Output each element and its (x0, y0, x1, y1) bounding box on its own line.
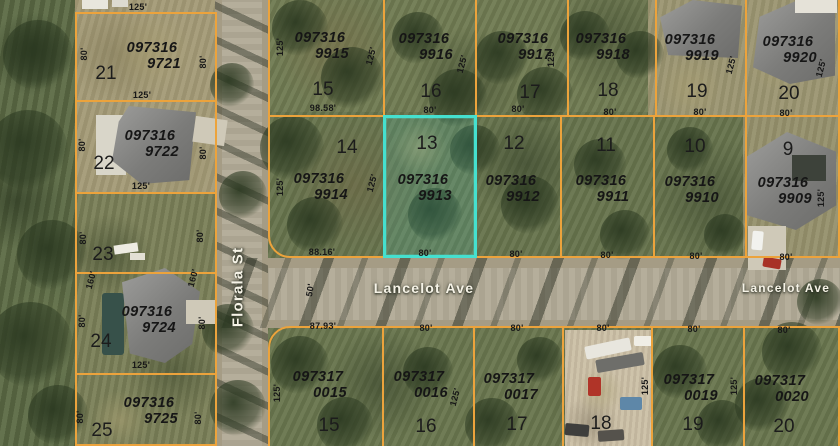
dimension-label: 80' (689, 251, 702, 261)
dimension-label: 125' (448, 387, 462, 407)
parcel-id-label-0017: 0973170017 (484, 372, 535, 404)
dimension-label: 80' (198, 146, 208, 159)
parcel-id-label-9915: 0973169915 (295, 31, 346, 63)
dimension-label: 80' (777, 325, 790, 335)
dimension-label: 80' (193, 411, 203, 424)
dimension-label: 80' (77, 314, 87, 327)
lot-number-24: 24 (90, 331, 111, 353)
parcel-id-label-9914: 0973169914 (294, 172, 345, 204)
dimension-label: 80' (603, 107, 616, 117)
lot-number-9909: 9 (783, 139, 794, 161)
dimension-label: 80' (596, 323, 609, 333)
lot-number-0020: 20 (773, 416, 794, 438)
dimension-label: 80' (78, 231, 88, 244)
lot-number-23: 23 (92, 244, 113, 266)
street-label-florala-st: Florala St (230, 247, 247, 327)
lot-number-21: 21 (95, 63, 116, 85)
parcel-id-label-25: 0973169725 (124, 396, 175, 428)
parcel-id-label-9911: 0973169911 (576, 174, 627, 206)
dimension-label: 160' (84, 270, 98, 290)
parcel-id-label-24: 0973169724 (122, 305, 173, 337)
lot-number-9913: 13 (416, 133, 437, 155)
dimension-label: 80' (509, 249, 522, 259)
dimension-label: 160' (186, 268, 200, 288)
dimension-label: 50' (304, 283, 316, 298)
parcel-id-label-0020: 0973170020 (755, 374, 806, 406)
label-layer: 0973169721210973169722222309731697242409… (0, 0, 840, 446)
parcel-id-label-9910: 0973169910 (665, 175, 716, 207)
dimension-label: 80' (418, 248, 431, 258)
street-label-lancelot-ave: Lancelot Ave (374, 280, 475, 296)
lot-number-0019: 19 (682, 414, 703, 436)
lot-number-9918: 18 (597, 80, 618, 102)
lot-number-25: 25 (91, 420, 112, 442)
dimension-label: 80' (779, 108, 792, 118)
dimension-label: 125' (640, 377, 650, 395)
dimension-label: 80' (511, 104, 524, 114)
parcel-id-label-0019: 0973170019 (664, 373, 715, 405)
dimension-label: 125' (816, 189, 826, 207)
dimension-label: 80' (600, 250, 613, 260)
dimension-label: 125' (129, 2, 147, 12)
parcel-id-label-9918: 0973169918 (576, 32, 627, 64)
dimension-label: 125' (729, 377, 739, 395)
dimension-label: 80' (419, 323, 432, 333)
lot-number-9912: 12 (503, 133, 524, 155)
dimension-label: 80' (195, 229, 205, 242)
lot-number-9914: 14 (336, 137, 357, 159)
lot-number-0016: 16 (415, 416, 436, 438)
parcel-id-label-9917: 0973169917 (498, 32, 549, 64)
dimension-label: 125' (132, 360, 150, 370)
parcel-id-label-9920: 0973169920 (763, 35, 814, 67)
dimension-label: 87.93' (310, 321, 336, 331)
dimension-label: 125' (724, 55, 738, 75)
dimension-label: 125' (272, 384, 282, 402)
parcel-id-label-0015: 0973170015 (293, 370, 344, 402)
lot-number-9915: 15 (312, 79, 333, 101)
dimension-label: 98.58' (310, 103, 336, 113)
lot-number-9910: 10 (684, 136, 705, 158)
lot-number-9917: 17 (519, 82, 540, 104)
dimension-label: 80' (510, 323, 523, 333)
dimension-label: 125' (275, 38, 285, 56)
lot-number-9920: 20 (778, 83, 799, 105)
lot-number-0017: 17 (506, 414, 527, 436)
dimension-label: 80' (198, 55, 208, 68)
dimension-label: 88.16' (309, 247, 335, 257)
dimension-label: 80' (197, 316, 207, 329)
parcel-id-label-9909: 0973169909 (758, 176, 809, 208)
dimension-label: 80' (693, 107, 706, 117)
lot-number-18-south: 18 (590, 413, 611, 435)
lot-number-22: 22 (93, 153, 114, 175)
dimension-label: 125' (364, 46, 378, 66)
aerial-parcel-map: 0973169721210973169722222309731697242409… (0, 0, 840, 446)
parcel-id-label-22: 0973169722 (125, 129, 176, 161)
dimension-label: 125' (546, 49, 556, 67)
street-label-lancelot-ave: Lancelot Ave (742, 281, 830, 295)
parcel-id-label-0016: 0973170016 (394, 370, 445, 402)
parcel-id-label-9913: 0973169913 (398, 173, 449, 205)
lot-number-9916: 16 (420, 81, 441, 103)
dimension-label: 80' (423, 105, 436, 115)
dimension-label: 125' (275, 178, 285, 196)
dimension-label: 80' (75, 410, 85, 423)
parcel-id-label-9916: 0973169916 (399, 32, 450, 64)
parcel-id-label-21: 0973169721 (127, 41, 178, 73)
dimension-label: 125' (365, 173, 379, 193)
dimension-label: 80' (687, 324, 700, 334)
parcel-id-label-9912: 0973169912 (486, 174, 537, 206)
parcel-id-label-9919: 0973169919 (665, 33, 716, 65)
dimension-label: 125' (132, 181, 150, 191)
lot-number-9911: 11 (596, 135, 616, 157)
dimension-label: 125' (455, 54, 469, 74)
dimension-label: 80' (77, 138, 87, 151)
dimension-label: 125' (133, 90, 151, 100)
dimension-label: 80' (779, 252, 792, 262)
lot-number-0015: 15 (318, 415, 339, 437)
dimension-label: 80' (79, 47, 89, 60)
lot-number-9919: 19 (686, 81, 707, 103)
